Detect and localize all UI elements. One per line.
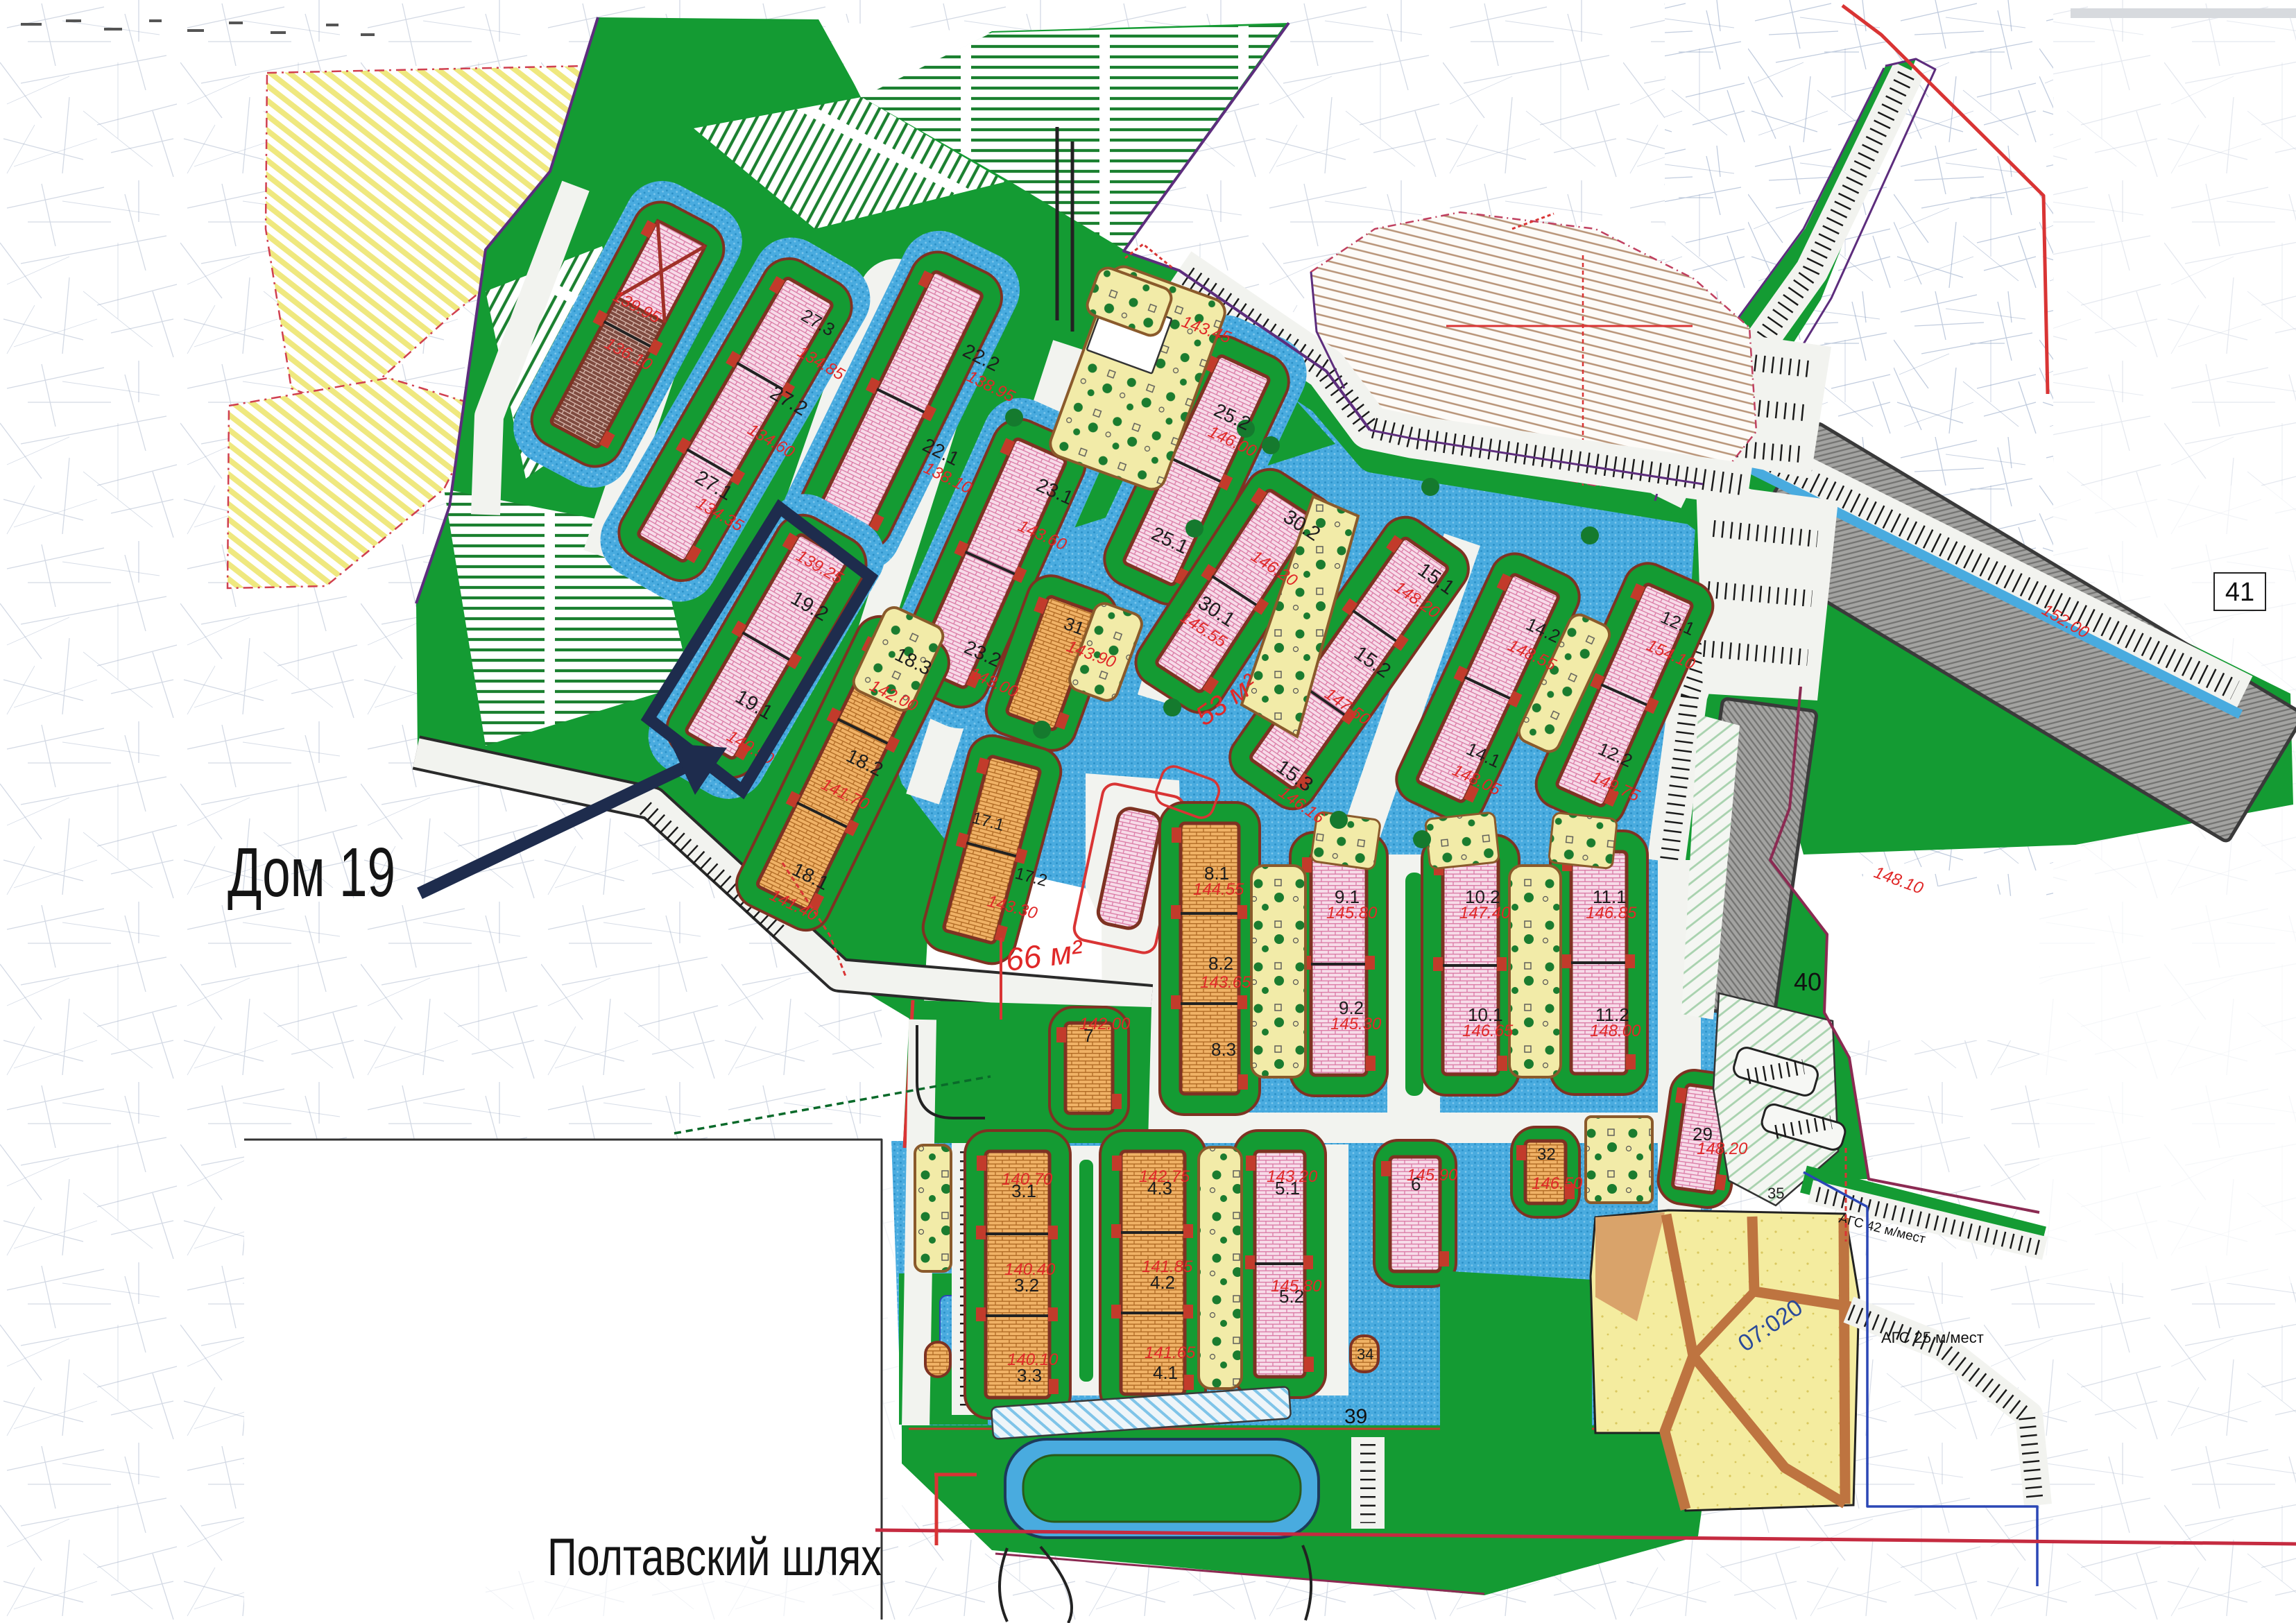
svg-text:145.30: 145.30 <box>1330 1015 1382 1033</box>
svg-text:145.80: 145.80 <box>1271 1277 1322 1296</box>
svg-text:147.40: 147.40 <box>1459 904 1511 922</box>
svg-text:40: 40 <box>1794 968 1822 996</box>
svg-text:34: 34 <box>1357 1346 1373 1363</box>
svg-text:АГС 25 м/мест: АГС 25 м/мест <box>1881 1329 1984 1346</box>
svg-text:8.2: 8.2 <box>1208 953 1233 974</box>
svg-text:140.10: 140.10 <box>1007 1350 1059 1369</box>
svg-text:140.70: 140.70 <box>1002 1170 1053 1189</box>
svg-text:35: 35 <box>1767 1185 1784 1202</box>
svg-text:41: 41 <box>2225 578 2254 607</box>
svg-text:143.20: 143.20 <box>1267 1167 1318 1186</box>
svg-text:142.00: 142.00 <box>1079 1015 1131 1033</box>
svg-text:4.1: 4.1 <box>1153 1362 1178 1383</box>
svg-text:145.80: 145.80 <box>1326 904 1378 922</box>
svg-text:140.40: 140.40 <box>1004 1260 1056 1279</box>
svg-text:144.55: 144.55 <box>1193 880 1244 899</box>
svg-text:Дом 19: Дом 19 <box>228 834 395 911</box>
svg-text:39: 39 <box>1344 1405 1367 1428</box>
svg-text:145.90: 145.90 <box>1407 1166 1458 1185</box>
svg-text:141.85: 141.85 <box>1142 1257 1193 1276</box>
svg-text:142.75: 142.75 <box>1139 1167 1190 1186</box>
svg-text:Полтавский шлях: Полтавский шлях <box>547 1528 882 1587</box>
svg-text:146.85: 146.85 <box>1586 904 1637 922</box>
svg-text:8.3: 8.3 <box>1211 1039 1236 1060</box>
svg-text:141.65: 141.65 <box>1145 1343 1196 1362</box>
svg-text:148.20: 148.20 <box>1697 1140 1748 1158</box>
svg-text:146.50: 146.50 <box>1532 1174 1583 1193</box>
svg-text:146.65: 146.65 <box>1462 1022 1514 1040</box>
svg-text:32: 32 <box>1537 1145 1556 1164</box>
svg-text:148.00: 148.00 <box>1590 1022 1641 1040</box>
svg-text:143.65: 143.65 <box>1200 973 1251 992</box>
